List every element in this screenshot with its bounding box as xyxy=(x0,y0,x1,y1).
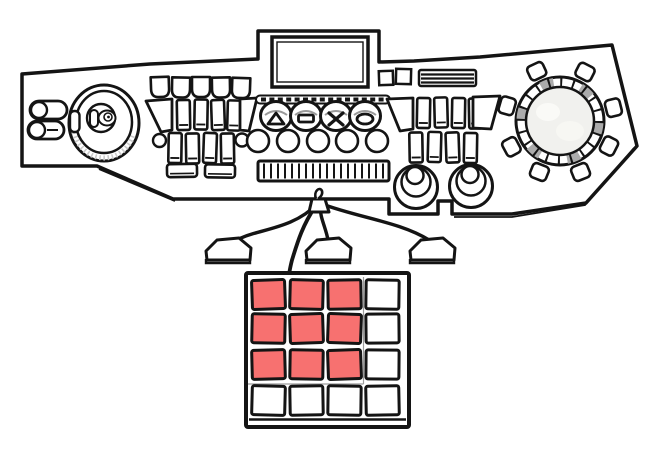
keypad-button-r2c2[interactable] xyxy=(290,313,324,343)
keypad-button-r3c1[interactable] xyxy=(252,350,286,380)
keypad-button-r4c2[interactable] xyxy=(290,386,324,416)
round-button[interactable] xyxy=(366,130,388,152)
slider-knob-icon xyxy=(31,102,47,118)
small-square-button[interactable] xyxy=(396,69,411,84)
wide-key-button[interactable] xyxy=(167,164,197,178)
keypad-button-r1c3[interactable] xyxy=(328,280,362,310)
keypad-button-r1c4[interactable] xyxy=(366,280,399,309)
vent-slider[interactable] xyxy=(419,70,476,86)
key-button[interactable] xyxy=(151,77,170,98)
key-button[interactable] xyxy=(417,98,431,128)
key-button[interactable] xyxy=(168,133,182,163)
keypad-button-r2c1[interactable] xyxy=(252,314,286,344)
key-button[interactable] xyxy=(194,99,208,129)
key-button[interactable] xyxy=(211,100,225,130)
key-button[interactable] xyxy=(212,77,230,97)
key-button[interactable] xyxy=(221,133,235,163)
key-button[interactable] xyxy=(203,133,217,163)
small-square-button[interactable] xyxy=(379,71,393,85)
keypad-button-r1c2[interactable] xyxy=(290,280,324,310)
key-button[interactable] xyxy=(172,77,190,97)
cross-button[interactable] xyxy=(321,102,352,131)
keypad-button-r1c1[interactable] xyxy=(252,279,286,309)
key-button[interactable] xyxy=(452,98,466,128)
square-icon xyxy=(299,115,314,122)
round-button[interactable] xyxy=(277,130,299,152)
slider-control-2[interactable] xyxy=(28,121,64,139)
dial-face-texture xyxy=(536,103,560,121)
keypad-button-r3c3[interactable] xyxy=(328,349,362,379)
keypad-button-r4c1[interactable] xyxy=(252,386,286,416)
foot-pedal[interactable] xyxy=(206,238,251,263)
keypad-button-r3c4[interactable] xyxy=(366,350,399,379)
foot-pedal[interactable] xyxy=(306,238,351,263)
key-button[interactable] xyxy=(186,133,200,163)
rotary-knob[interactable] xyxy=(450,165,493,208)
triangle-button[interactable] xyxy=(261,102,292,131)
center-cluster xyxy=(247,96,390,182)
key-button[interactable] xyxy=(434,97,448,127)
key-button[interactable] xyxy=(409,132,423,162)
keypad-button-r3c2[interactable] xyxy=(290,350,324,380)
slider-knob-icon xyxy=(29,122,45,138)
console xyxy=(22,31,637,217)
key-button[interactable] xyxy=(232,78,251,99)
dial-face-texture xyxy=(556,121,584,141)
dial-face xyxy=(526,87,594,155)
dial-button[interactable] xyxy=(604,98,623,118)
keypad-button-r4c3[interactable] xyxy=(328,386,361,415)
rotary-knob[interactable] xyxy=(395,166,438,209)
trackball-side-button[interactable] xyxy=(70,111,80,132)
trackball[interactable] xyxy=(69,85,139,161)
oval-icon xyxy=(357,114,373,124)
key-button[interactable] xyxy=(177,100,191,130)
key-button[interactable] xyxy=(192,77,210,97)
key-button[interactable] xyxy=(464,133,478,163)
display-screen xyxy=(272,37,368,87)
key-button[interactable] xyxy=(445,132,459,162)
keypad-button-r2c4[interactable] xyxy=(366,314,399,343)
keypad xyxy=(246,273,409,427)
oval-button[interactable] xyxy=(350,102,381,131)
keypad-button-r2c3[interactable] xyxy=(328,313,362,343)
dial-button[interactable] xyxy=(498,96,517,116)
slider-control-1[interactable] xyxy=(30,101,67,119)
small-round-button[interactable] xyxy=(153,134,166,147)
round-button[interactable] xyxy=(307,130,329,152)
console-illustration xyxy=(0,0,656,450)
key-button[interactable] xyxy=(428,132,442,162)
segmented-slider[interactable] xyxy=(258,161,389,181)
foot-pedal[interactable] xyxy=(410,238,455,263)
round-button[interactable] xyxy=(247,130,269,152)
square-button[interactable] xyxy=(291,102,322,131)
wide-key-button[interactable] xyxy=(205,164,235,178)
round-button[interactable] xyxy=(336,130,358,152)
keypad-button-r4c4[interactable] xyxy=(366,386,400,416)
